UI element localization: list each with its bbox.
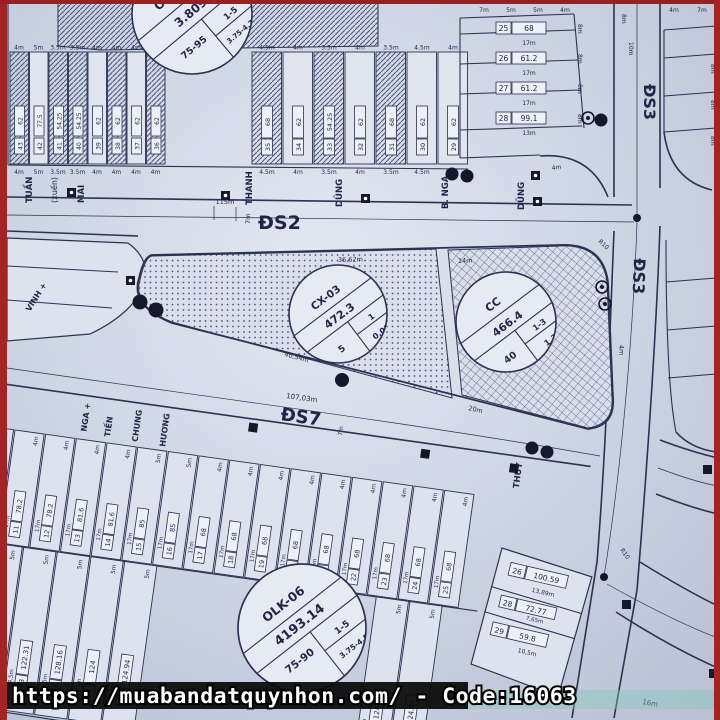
plot-area: 68 — [322, 545, 331, 554]
survey-marker-dot — [446, 168, 459, 181]
plot-width-dim: 13m — [522, 130, 536, 137]
plot-width-dim: 4m — [124, 449, 132, 460]
owner-name: DŨNG — [515, 182, 527, 210]
plot-area: 62 — [419, 118, 427, 126]
plot-strip: 3.5m 54.25 41 3.5m — [49, 45, 68, 177]
plot-width-dim: 17m — [522, 70, 536, 77]
survey-marker-dot — [149, 303, 164, 318]
plot-width-dim: 4m — [355, 45, 365, 52]
red-border-top — [0, 0, 720, 4]
plot-width-dim: 4m — [112, 45, 122, 52]
plot-side-dim: 8m — [576, 84, 583, 94]
plot-area: 68 — [199, 528, 208, 537]
plot-width-dim: 4m — [355, 169, 365, 176]
dim-label-4m: 4m — [617, 345, 626, 356]
plot-width-dim: 4m — [431, 492, 439, 503]
plot-width-dim: 4.5m — [259, 45, 275, 52]
cadastral-map-photo: 4m 62 43 4m 5m 77.5 42 5m 3.5m — [0, 0, 720, 720]
plot-width-dim: 4m — [339, 479, 347, 490]
plot-width-dim: 4m — [216, 462, 224, 473]
dim-label: 5m — [506, 7, 516, 14]
plot-width-dim: 3.5m — [50, 45, 66, 52]
plot-number: 30 — [419, 143, 427, 151]
plot-width-dim: 4m — [131, 45, 141, 52]
plot-number: 19 — [257, 559, 266, 568]
plot-width-dim: 4.5m — [414, 45, 430, 52]
plot-area: 62 — [95, 117, 102, 125]
dim-label-10m: 10m — [627, 42, 634, 56]
survey-marker-dot — [335, 373, 349, 387]
owner-name: DŨNG — [333, 179, 345, 207]
plot-strip: 4m 62 39 4m — [88, 45, 107, 177]
plot-number: 16 — [165, 547, 174, 556]
plot-number: 12 — [42, 529, 51, 538]
dim-label: 5m — [533, 7, 543, 14]
plot-number: 29 — [450, 143, 458, 151]
plot-width-dim: 3.5m — [321, 169, 337, 176]
survey-marker-dot — [461, 170, 474, 183]
plot-width-dim: 5m — [144, 569, 152, 580]
plot-side-dim: 8m — [576, 54, 583, 64]
plot-number: 35 — [264, 143, 272, 151]
plot-area: 68 — [353, 549, 362, 558]
plot-width-dim: 3.5m — [383, 169, 399, 176]
owner-name: B. NGA — [441, 175, 451, 209]
plot-number: 37 — [134, 142, 141, 150]
plot-width-dim: 3.5m — [321, 45, 337, 52]
dim-label: 4m — [669, 7, 679, 14]
plot-width-dim: 4m — [93, 444, 101, 455]
plot-width-dim: 5m — [43, 554, 51, 565]
plot-width-dim: 4m — [400, 488, 408, 499]
owner-name: MAI — [77, 185, 87, 203]
plot-number: 27 — [499, 84, 509, 93]
plot-width-dim: 5m — [155, 453, 163, 464]
plot-number: 18 — [226, 555, 235, 564]
plot-width-dim: 3.5m — [70, 45, 86, 52]
survey-marker-square — [248, 422, 258, 432]
plot-strip: 4m 62 34 4m — [283, 45, 313, 177]
plot-number: 34 — [295, 143, 303, 151]
plot-area: 68 — [414, 558, 423, 567]
plot-width-dim: 4m — [293, 169, 303, 176]
plot-width-dim: 3.5m — [50, 169, 66, 176]
plot-width-dim: 4m — [112, 169, 122, 176]
plot-width-dim: 5m — [76, 559, 84, 570]
plot-number: 32 — [357, 143, 365, 151]
plot-area: 68 — [524, 24, 534, 33]
plot-number: 11 — [12, 525, 21, 534]
plot-number: 38 — [115, 142, 122, 150]
plot-width-dim: 5m — [185, 457, 193, 468]
street-label-ds2: ĐS2 — [258, 212, 301, 234]
plot-number: 41 — [56, 142, 63, 150]
plot-area: 68 — [264, 118, 272, 126]
plot-area: 54.25 — [56, 112, 63, 129]
survey-marker-square — [509, 463, 519, 473]
plot-strip: 4m 62 43 4m — [10, 45, 29, 177]
plot-number: 14 — [104, 538, 113, 547]
plot-area: 68 — [230, 532, 239, 541]
plot-area: 62 — [357, 118, 365, 126]
road-node-dot — [600, 573, 608, 581]
dim-label-14m: 14m — [458, 256, 473, 265]
plot-number: 17 — [196, 551, 205, 560]
dim-label-4m: 4m — [551, 164, 562, 172]
plot-number: 43 — [17, 142, 24, 150]
plot-width-dim: 4m — [293, 45, 303, 52]
plot-strip: 5m 77.5 42 5m — [30, 45, 49, 177]
survey-marker-square — [703, 465, 712, 474]
plot-width-dim: 5m — [34, 169, 44, 176]
road-node-dot — [633, 214, 641, 222]
plot-width-dim: 17m — [522, 100, 536, 107]
plot-area: 99.1 — [521, 114, 538, 123]
plot-strip: 3.5m 54.25 40 3.5m — [69, 45, 88, 177]
plot-width-dim: 5m — [34, 45, 44, 52]
plot-area: 62 — [134, 117, 141, 125]
plot-width-dim: 4m — [462, 496, 470, 507]
plot-width-dim: 4m — [370, 483, 378, 494]
plot-number: 36 — [154, 142, 161, 150]
red-border-right — [714, 0, 720, 720]
dim-label-7m: 7m — [244, 214, 252, 224]
plot-area: 77.5 — [37, 114, 44, 128]
red-border-left — [0, 0, 7, 720]
dim-label: 7m — [479, 7, 489, 14]
dim-label-8m: 8m — [620, 14, 627, 24]
plot-width-dim: 4m — [14, 169, 24, 176]
watermark-url: https://muabandatquynhon.com/ - Code:160… — [12, 684, 577, 709]
plot-number: 13 — [73, 534, 82, 543]
plot-width-dim: 4.5m — [259, 169, 275, 176]
street-label-ds3: ĐS3 — [640, 84, 659, 120]
plot-width-dim: 4m — [131, 169, 141, 176]
plot-area: 68 — [383, 553, 392, 562]
plot-area: 62 — [295, 118, 303, 126]
plot-width-dim: 5m — [429, 609, 437, 620]
plot-width-dim: 4m — [448, 45, 458, 52]
plot-number: 39 — [95, 142, 102, 150]
dim-label: 7m — [697, 7, 707, 14]
plot-area: 62 — [154, 117, 161, 125]
plot-width-dim: 4m — [278, 470, 286, 481]
plot-strip: 4m 62 38 4m — [108, 45, 127, 177]
survey-marker-dot — [526, 442, 539, 455]
plot-strip: 3.5m 68 31 3.5m — [376, 45, 406, 177]
plot-number: 31 — [388, 143, 396, 151]
plot-width-dim: 5m — [9, 550, 17, 561]
plot-width-dim: 3.5m — [383, 45, 399, 52]
plot-number: 25 — [441, 585, 450, 594]
dim-label: 4m — [560, 7, 570, 14]
plot-width-dim: 4m — [247, 466, 255, 477]
plot-strip: 4m 62 37 4m — [127, 45, 146, 177]
plot-number: 33 — [326, 143, 334, 151]
survey-marker-square — [622, 600, 631, 609]
plot-number: 28 — [499, 114, 509, 123]
plot-area: 62 — [115, 117, 122, 125]
plot-area: 68 — [291, 540, 300, 549]
plot-number: 23 — [380, 577, 389, 586]
plot-number: 24 — [411, 581, 420, 590]
survey-marker-dot — [541, 446, 554, 459]
plot-area: 68 — [388, 118, 396, 126]
street-label-ds3: ĐS3 — [629, 258, 649, 295]
plot-strip: 4.5m 62 30 4.5m — [407, 45, 437, 177]
plot-area: 85 — [168, 523, 177, 532]
survey-marker-dot — [595, 114, 608, 127]
plot-number: 22 — [349, 572, 358, 581]
plot-number: 26 — [499, 54, 509, 63]
plot-width-dim: 4m — [14, 45, 24, 52]
map-canvas: 4m 62 43 4m 5m 77.5 42 5m 3.5m — [0, 0, 720, 720]
owner-name: (xuến) — [49, 177, 59, 203]
plot-width-dim: 4m — [92, 169, 102, 176]
plot-strip: 4.5m 68 35 4.5m — [252, 45, 282, 177]
plot-width-dim: 4m — [92, 45, 102, 52]
plot-area: 85 — [138, 519, 147, 528]
plot-area: 54.25 — [326, 113, 334, 132]
plot-width-dim: 4m — [151, 169, 161, 176]
top-strip-row-right: 4.5m 68 35 4.5m 4m 62 34 4m 3.5m — [252, 45, 468, 177]
survey-marker-square — [420, 449, 430, 459]
plot-width-dim: 4m — [32, 436, 40, 447]
plot-side-dim: 8m — [576, 24, 583, 34]
survey-marker-dot — [133, 295, 148, 310]
plot-area: 61.2 — [521, 84, 538, 93]
plot-number: 25 — [499, 24, 509, 33]
plot-width-dim: 5m — [110, 564, 118, 575]
plot-width-dim: 4m — [63, 440, 71, 451]
plot-width-dim: 4m — [308, 475, 316, 486]
plot-width-dim: 4.5m — [414, 169, 430, 176]
plot-strip: 3.5m 54.25 33 3.5m — [314, 45, 344, 177]
plot-number: 40 — [76, 142, 83, 150]
plot-number: 42 — [37, 142, 44, 150]
plot-area: 54.25 — [76, 112, 83, 129]
plot-area: 68 — [445, 562, 454, 571]
plot-width-dim: 3.5m — [70, 169, 86, 176]
plot-area: 62 — [450, 118, 458, 126]
plot-number: 15 — [134, 542, 143, 551]
plot-area: 61.2 — [521, 54, 538, 63]
plot-area: 62 — [17, 117, 24, 125]
plot-strip: 4m 62 32 4m — [345, 45, 375, 177]
plot-width-dim: 5m — [395, 604, 403, 615]
plot-area: 68 — [260, 536, 269, 545]
plot-width-dim: 17m — [522, 40, 536, 47]
dim-label-36-62m: 36,62m — [338, 255, 363, 264]
